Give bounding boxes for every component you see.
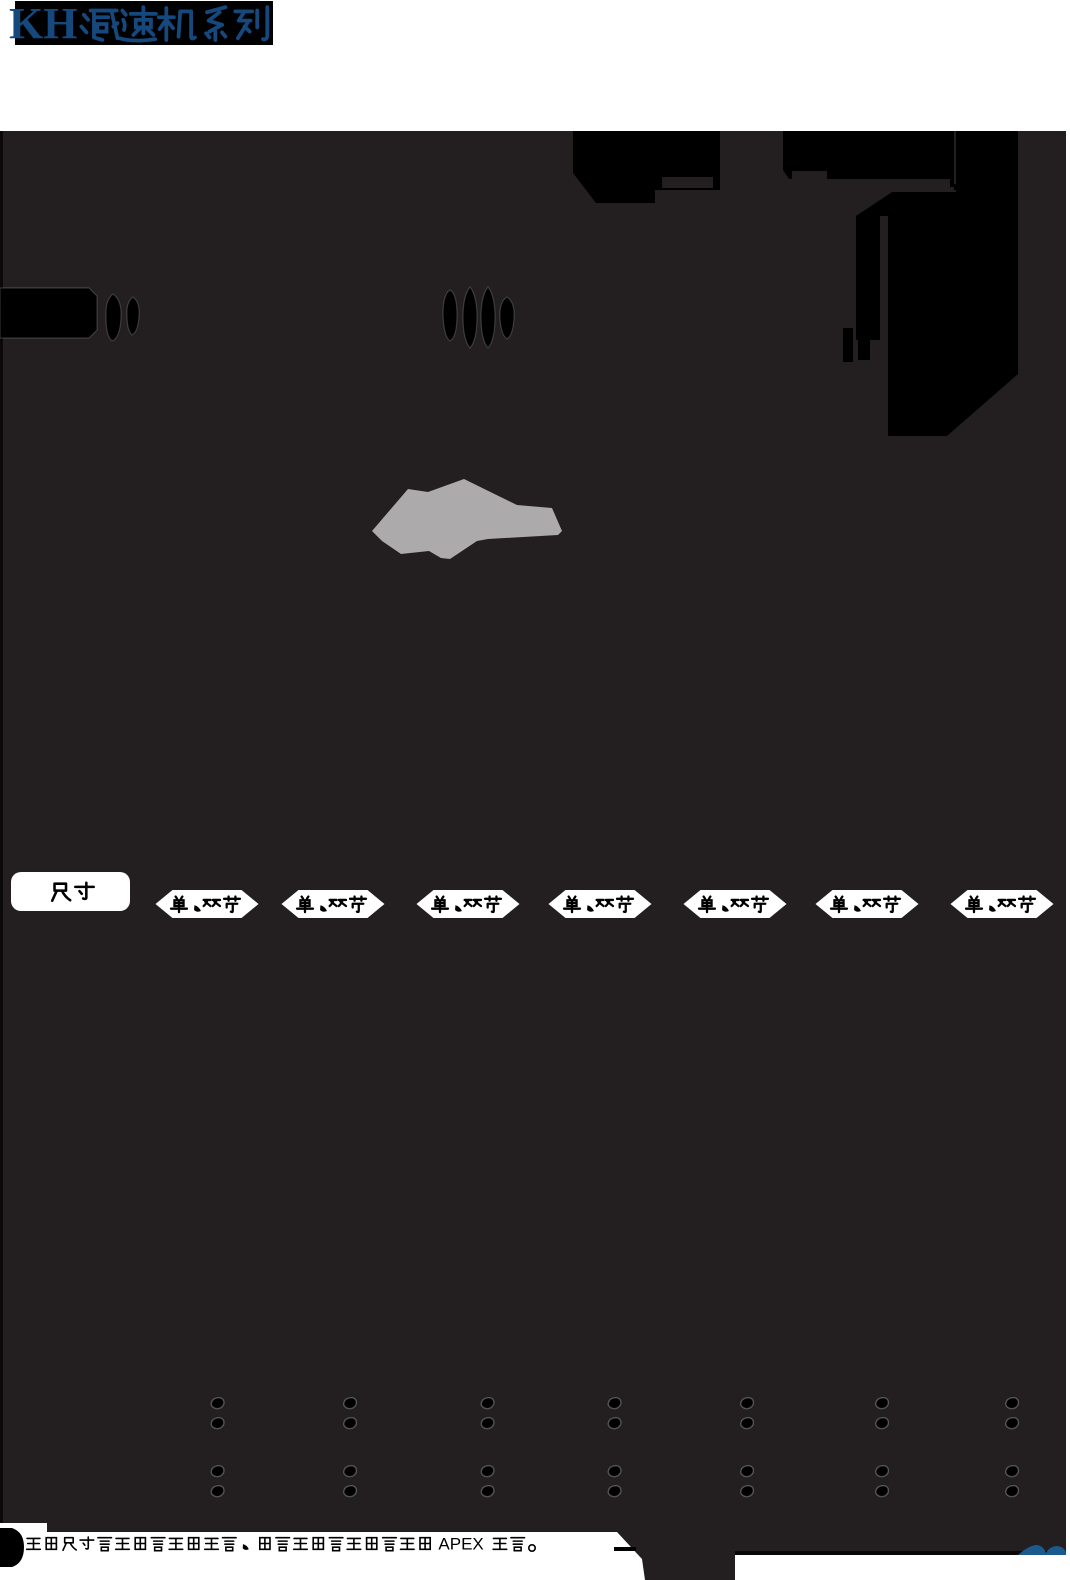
- svg-text:APEX: APEX: [438, 1535, 483, 1554]
- svg-text:KH: KH: [9, 0, 77, 48]
